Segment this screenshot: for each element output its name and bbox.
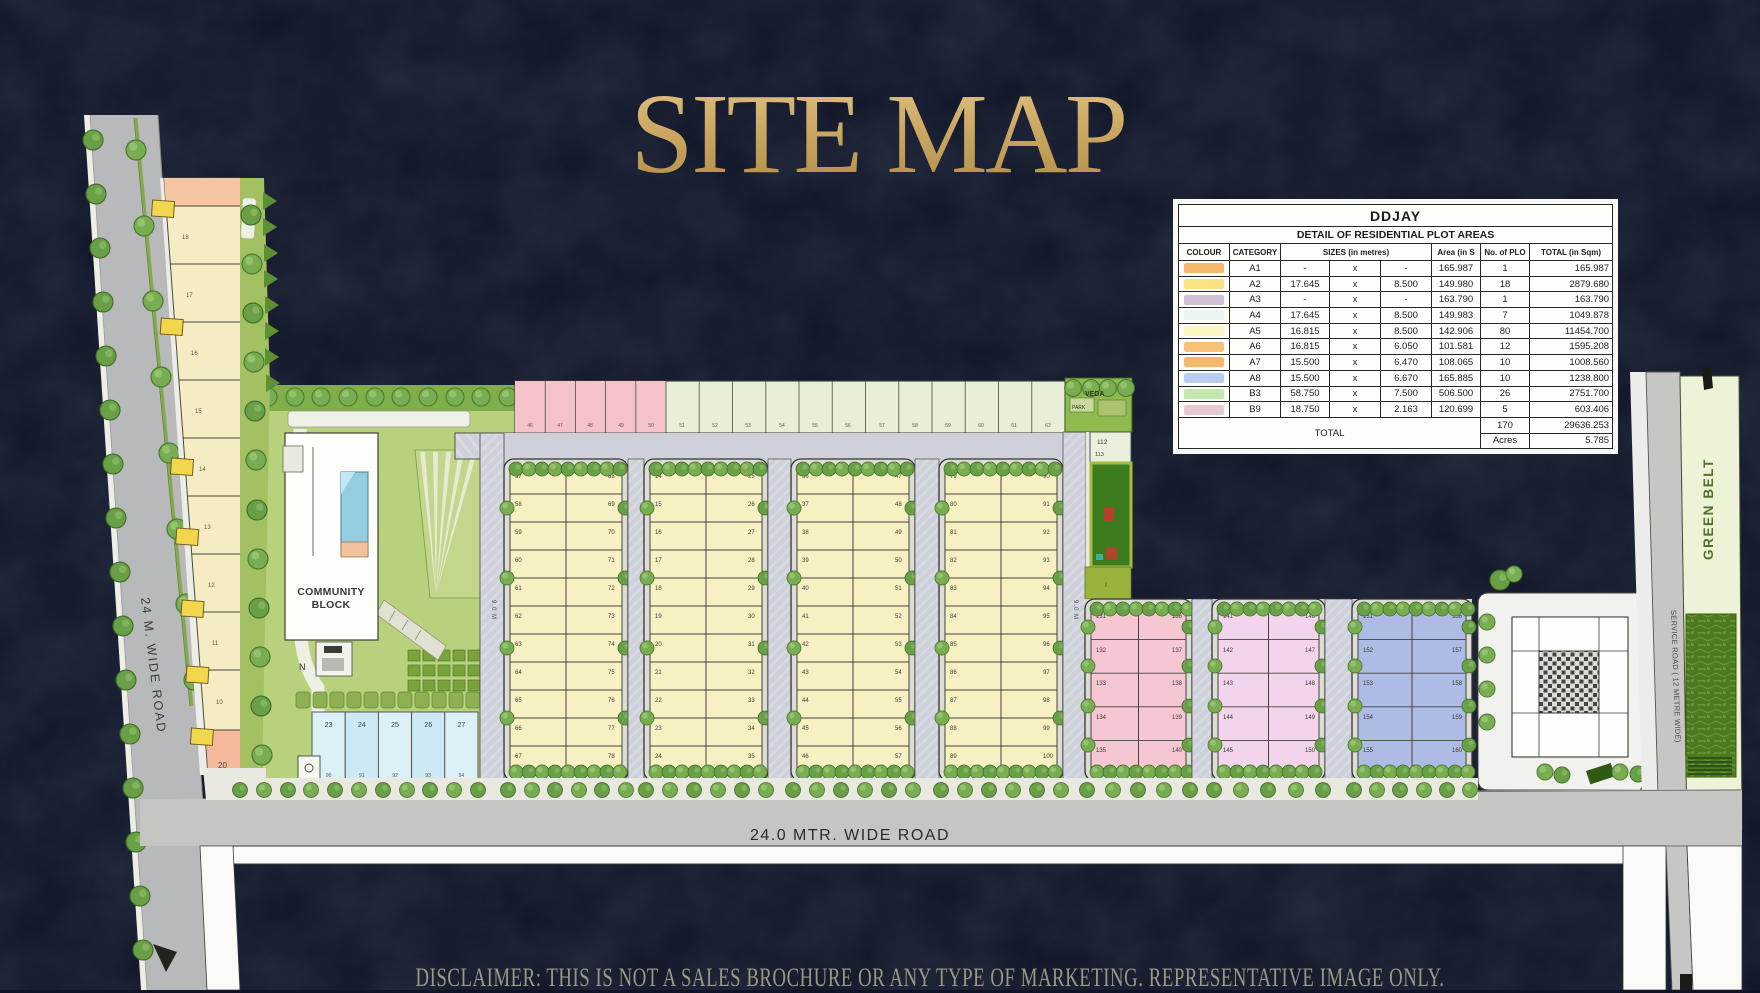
svg-text:152: 152 <box>1363 648 1374 654</box>
svg-text:16: 16 <box>191 351 198 357</box>
svg-text:83: 83 <box>950 586 957 592</box>
svg-text:23: 23 <box>325 722 333 729</box>
svg-text:17: 17 <box>655 558 662 564</box>
svg-text:134: 134 <box>1096 715 1107 721</box>
svg-text:46: 46 <box>802 754 809 760</box>
svg-text:VEDA: VEDA <box>1085 391 1104 398</box>
svg-text:46: 46 <box>527 423 533 429</box>
svg-text:BLOCK: BLOCK <box>312 599 351 611</box>
svg-text:86: 86 <box>950 670 957 676</box>
svg-text:112: 112 <box>1097 439 1108 446</box>
svg-text:140: 140 <box>1172 748 1183 754</box>
svg-text:159: 159 <box>1452 715 1463 721</box>
svg-text:53: 53 <box>895 642 902 648</box>
svg-text:54: 54 <box>895 670 902 676</box>
svg-text:42: 42 <box>802 642 809 648</box>
svg-text:18: 18 <box>182 235 189 241</box>
svg-text:89: 89 <box>950 754 957 760</box>
svg-text:32: 32 <box>748 670 755 676</box>
svg-text:45: 45 <box>802 726 809 732</box>
svg-text:55: 55 <box>812 423 818 429</box>
svg-text:64: 64 <box>515 670 522 676</box>
svg-text:133: 133 <box>1096 681 1107 687</box>
svg-text:143: 143 <box>1223 681 1234 687</box>
svg-text:SITE MAP: SITE MAP <box>630 70 1125 197</box>
svg-text:60: 60 <box>978 423 984 429</box>
svg-text:67: 67 <box>515 754 522 760</box>
svg-text:100: 100 <box>1043 754 1054 760</box>
svg-text:51: 51 <box>895 586 902 592</box>
svg-text:24.0 MTR. WIDE ROAD: 24.0 MTR. WIDE ROAD <box>750 827 950 844</box>
svg-text:40: 40 <box>802 586 809 592</box>
svg-text:61: 61 <box>515 586 522 592</box>
svg-text:75: 75 <box>608 670 615 676</box>
svg-text:135: 135 <box>1096 748 1107 754</box>
svg-text:94: 94 <box>1043 586 1050 592</box>
svg-text:93: 93 <box>1043 558 1050 564</box>
svg-text:58: 58 <box>912 423 918 429</box>
svg-text:147: 147 <box>1305 648 1316 654</box>
svg-text:85: 85 <box>950 642 957 648</box>
svg-text:63: 63 <box>515 642 522 648</box>
svg-text:24: 24 <box>358 722 366 729</box>
svg-text:48: 48 <box>895 502 902 508</box>
svg-text:69: 69 <box>608 502 615 508</box>
svg-text:33: 33 <box>748 698 755 704</box>
svg-text:47: 47 <box>557 423 563 429</box>
svg-text:19: 19 <box>655 614 662 620</box>
svg-text:160: 160 <box>1452 748 1463 754</box>
svg-text:24: 24 <box>655 754 662 760</box>
svg-text:72: 72 <box>608 586 615 592</box>
svg-text:59: 59 <box>945 423 951 429</box>
svg-text:92: 92 <box>1043 530 1050 536</box>
svg-text:15: 15 <box>655 502 662 508</box>
svg-text:N: N <box>299 662 306 672</box>
svg-text:12: 12 <box>208 583 215 589</box>
svg-text:139: 139 <box>1172 715 1183 721</box>
svg-text:51: 51 <box>679 423 685 429</box>
svg-text:26: 26 <box>424 722 432 729</box>
svg-text:142: 142 <box>1223 648 1234 654</box>
svg-text:21: 21 <box>655 670 662 676</box>
svg-text:88: 88 <box>950 726 957 732</box>
svg-text:14: 14 <box>199 467 206 473</box>
svg-text:62: 62 <box>1045 423 1051 429</box>
svg-text:49: 49 <box>895 530 902 536</box>
svg-text:30: 30 <box>748 614 755 620</box>
svg-text:87: 87 <box>950 698 957 704</box>
svg-text:70: 70 <box>608 530 615 536</box>
svg-text:66: 66 <box>515 726 522 732</box>
svg-text:56: 56 <box>845 423 851 429</box>
svg-text:50: 50 <box>895 558 902 564</box>
svg-text:52: 52 <box>895 614 902 620</box>
svg-text:77: 77 <box>608 726 615 732</box>
svg-text:95: 95 <box>1043 614 1050 620</box>
svg-text:43: 43 <box>802 670 809 676</box>
svg-text:149: 149 <box>1305 715 1316 721</box>
svg-text:53: 53 <box>745 423 751 429</box>
svg-text:58: 58 <box>515 502 522 508</box>
svg-text:I: I <box>1105 582 1107 589</box>
svg-text:57: 57 <box>879 423 885 429</box>
svg-text:65: 65 <box>515 698 522 704</box>
svg-text:20: 20 <box>655 642 662 648</box>
svg-text:113: 113 <box>1095 452 1104 458</box>
svg-text:9.0 M: 9.0 M <box>1072 600 1078 620</box>
svg-text:25: 25 <box>391 722 399 729</box>
svg-text:49: 49 <box>618 423 624 429</box>
svg-text:28: 28 <box>748 558 755 564</box>
svg-text:31: 31 <box>748 642 755 648</box>
svg-text:26: 26 <box>748 502 755 508</box>
svg-text:23: 23 <box>655 726 662 732</box>
svg-text:10: 10 <box>216 700 223 706</box>
svg-text:155: 155 <box>1363 748 1374 754</box>
svg-text:150: 150 <box>1305 748 1316 754</box>
svg-text:97: 97 <box>1043 670 1050 676</box>
svg-text:27: 27 <box>748 530 755 536</box>
svg-text:145: 145 <box>1223 748 1234 754</box>
svg-text:98: 98 <box>1043 698 1050 704</box>
svg-text:80: 80 <box>950 502 957 508</box>
svg-text:144: 144 <box>1223 715 1234 721</box>
svg-text:61: 61 <box>1011 423 1017 429</box>
svg-text:27: 27 <box>458 722 466 729</box>
svg-text:138: 138 <box>1172 681 1183 687</box>
svg-text:PARK: PARK <box>1072 405 1086 411</box>
svg-text:71: 71 <box>608 558 615 564</box>
svg-text:34: 34 <box>748 726 755 732</box>
svg-text:29: 29 <box>748 586 755 592</box>
svg-text:41: 41 <box>802 614 809 620</box>
svg-text:99: 99 <box>1043 726 1050 732</box>
svg-text:59: 59 <box>515 530 522 536</box>
svg-text:81: 81 <box>950 530 957 536</box>
svg-text:48: 48 <box>587 423 593 429</box>
svg-text:38: 38 <box>802 530 809 536</box>
svg-text:35: 35 <box>748 754 755 760</box>
svg-text:44: 44 <box>802 698 809 704</box>
svg-text:154: 154 <box>1363 715 1374 721</box>
svg-text:78: 78 <box>608 754 615 760</box>
svg-text:132: 132 <box>1096 648 1107 654</box>
svg-text:96: 96 <box>1043 642 1050 648</box>
svg-text:91: 91 <box>1043 502 1050 508</box>
svg-text:17: 17 <box>186 293 193 299</box>
svg-text:148: 148 <box>1305 681 1316 687</box>
svg-text:158: 158 <box>1452 681 1463 687</box>
svg-text:55: 55 <box>895 698 902 704</box>
svg-text:9.0 M: 9.0 M <box>490 600 496 620</box>
svg-text:73: 73 <box>608 614 615 620</box>
svg-text:39: 39 <box>802 558 809 564</box>
svg-text:57: 57 <box>895 754 902 760</box>
svg-text:82: 82 <box>950 558 957 564</box>
svg-text:62: 62 <box>515 614 522 620</box>
svg-text:37: 37 <box>802 502 809 508</box>
svg-text:153: 153 <box>1363 681 1374 687</box>
svg-text:84: 84 <box>950 614 957 620</box>
svg-text:52: 52 <box>712 423 718 429</box>
svg-text:16: 16 <box>655 530 662 536</box>
svg-text:76: 76 <box>608 698 615 704</box>
svg-text:22: 22 <box>655 698 662 704</box>
svg-text:137: 137 <box>1172 648 1183 654</box>
svg-text:GREEN BELT: GREEN BELT <box>1701 458 1716 560</box>
svg-text:74: 74 <box>608 642 615 648</box>
svg-text:50: 50 <box>648 423 654 429</box>
svg-text:11: 11 <box>212 641 219 647</box>
svg-text:54: 54 <box>779 423 785 429</box>
svg-text:15: 15 <box>195 409 202 415</box>
svg-text:157: 157 <box>1452 648 1463 654</box>
svg-text:18: 18 <box>655 586 662 592</box>
svg-text:13: 13 <box>204 525 211 531</box>
svg-text:COMMUNITY: COMMUNITY <box>297 586 364 598</box>
svg-text:60: 60 <box>515 558 522 564</box>
svg-text:56: 56 <box>895 726 902 732</box>
